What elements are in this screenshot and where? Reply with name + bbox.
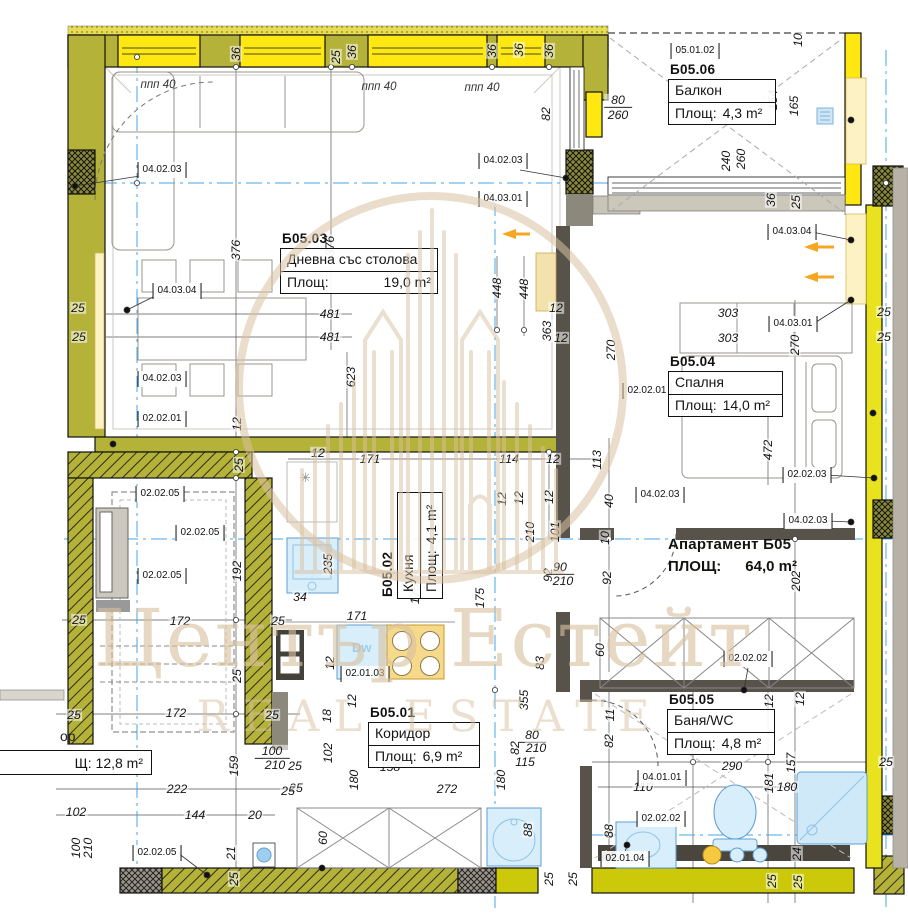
room-label-Б05.02: Б05.02КухняПлощ:4,1 m² [380, 492, 443, 599]
dimension: 82 [540, 106, 552, 122]
room-area: Площ:4,3 m² [669, 102, 775, 125]
room-name: Дневна със столова [281, 249, 437, 271]
dimension: 363 [541, 320, 553, 343]
detail-code: 02.02.05 [176, 525, 225, 541]
dimension: 60 [317, 830, 329, 846]
room-id: Б05.03 [282, 231, 438, 246]
room-label-Б05.06: Б05.06БалконПлощ:4,3 m² [668, 62, 776, 125]
dimension: 12 [553, 332, 569, 344]
detail-code: 02.02.01 [623, 383, 672, 399]
dimension: 172 [165, 707, 188, 719]
room-area: Площ:19,0 m² [281, 271, 437, 294]
dimension: 25 [878, 756, 894, 768]
dimension: 144 [184, 809, 207, 821]
detail-code: 04.02.03 [138, 162, 187, 178]
dimension: 25 [280, 785, 296, 797]
dimension: 180 [776, 781, 799, 793]
apartment-summary: Апартамент Б05 ПЛОЩ: 64,0 m² [668, 536, 797, 575]
dishwasher-symbol: Dw [352, 640, 372, 655]
detail-code: 02.02.01 [138, 411, 187, 427]
room-box: Дневна със столоваПлощ:19,0 m² [280, 248, 438, 294]
detail-code: 02.02.02 [724, 651, 773, 667]
room-name: Коридор [369, 723, 479, 745]
dimension: 25 [543, 871, 555, 887]
detail-code: 04.03.01 [769, 316, 818, 332]
detail-code: 04.01.01 [638, 770, 687, 786]
dimension: 113 [591, 449, 603, 471]
dimension: 12 [513, 490, 525, 506]
dimension: 355 [518, 689, 530, 712]
apartment-area-value: 64,0 m² [745, 558, 797, 575]
room-label-Б05.04: Б05.04СпалняПлощ:14,0 m² [668, 354, 783, 417]
dimension: 101 [549, 521, 561, 544]
dimension: 270 [605, 339, 617, 362]
detail-code: 04.02.03 [636, 487, 685, 503]
dimension: 25 [233, 457, 245, 473]
room-area: Площ:4,1 m² [420, 493, 443, 598]
dimension: 448 [491, 277, 503, 300]
detail-code: 04.03.04 [153, 283, 202, 299]
room-area: Площ:14,0 m² [669, 394, 782, 417]
room-label-Б05.01: Б05.01КоридорПлощ:6,9 m² [368, 705, 480, 768]
room-id: Б05.05 [669, 692, 775, 707]
dimension: 448 [518, 278, 530, 301]
apartment-name: Апартамент Б05 [668, 536, 797, 553]
dimension: 36 [765, 192, 777, 208]
dimension: 210 [552, 575, 575, 587]
dimension: 12 [543, 489, 555, 505]
dimension: 210 [82, 837, 94, 860]
adjacent-room-label-fragment: ор [60, 728, 76, 744]
dimension: 260 [607, 109, 630, 121]
detail-code: 02.01.04 [601, 851, 650, 867]
dimension: 24 [791, 846, 803, 862]
room-box: КухняПлощ:4,1 m² [397, 492, 443, 599]
dimension: 272 [436, 783, 459, 795]
detail-code: 02.02.05 [138, 568, 187, 584]
dimension: 12 [548, 302, 564, 314]
dimension: 210 [264, 759, 287, 771]
dimension: 172 [169, 615, 192, 627]
dimension: 192 [231, 560, 243, 583]
dimension: 472 [762, 439, 774, 462]
dimension: 12 [346, 693, 358, 709]
room-name: Баня/WC [668, 710, 774, 732]
dimension: 40 [603, 493, 615, 509]
dimension: 25 [792, 874, 804, 890]
room-name: Спалня [669, 372, 782, 394]
dimension: 88 [522, 822, 534, 838]
dimension: 12 [324, 655, 336, 671]
dimension: 10 [792, 32, 804, 48]
dimension: 25 [270, 615, 286, 627]
detail-code: 04.02.03 [784, 513, 833, 529]
dimension: 25 [287, 760, 303, 772]
room-id: Б05.01 [370, 705, 480, 720]
dimension: 83 [534, 655, 546, 671]
dimension: 80 [604, 94, 632, 108]
dimension: 25 [264, 709, 280, 721]
room-id: Б05.06 [670, 62, 776, 77]
dimension: 20 [247, 809, 263, 821]
dimension: 34 [292, 591, 308, 603]
dimension: 181 [763, 772, 775, 795]
dimension: 25 [228, 871, 240, 887]
dimension: 25 [790, 194, 802, 210]
room-name: Кухня [398, 493, 420, 598]
dimension: 481 [319, 331, 342, 343]
dimension: 25 [231, 668, 243, 684]
dimension: 290 [721, 760, 744, 772]
dimension: 25 [71, 614, 87, 626]
dimension: 36 [543, 43, 555, 59]
dimension: 36 [346, 44, 358, 60]
room-id: Б05.02 [380, 492, 395, 597]
fridge-symbol: ✳ [300, 470, 311, 486]
room-id: Б05.04 [670, 354, 783, 369]
dimension: 21 [225, 845, 237, 861]
dimension: 171 [346, 610, 369, 622]
dimension: 235 [322, 553, 334, 576]
detail-code: 02.02.05 [136, 486, 185, 502]
dimension: 210 [524, 521, 536, 544]
room-area: Площ:4,8 m² [668, 732, 774, 755]
dimension: 25 [876, 331, 892, 343]
dimension: 25 [330, 49, 342, 65]
dimension: 180 [495, 769, 507, 792]
adjacent-room-area-box: Щ: 12,8 m² [0, 750, 152, 775]
dimension: 376 [230, 239, 242, 262]
room-label-Б05.05: Б05.05Баня/WCПлощ:4,8 m² [667, 692, 775, 755]
detail-code: 04.02.03 [138, 371, 187, 387]
dimension: 102 [322, 742, 334, 765]
dimension: 25 [766, 873, 778, 889]
dimension: 115 [514, 756, 536, 768]
detail-code: 04.03.01 [479, 191, 528, 207]
detail-code: 04.02.03 [479, 153, 528, 169]
dimension: 12 [794, 691, 806, 707]
dimension: 102 [65, 806, 88, 818]
dimension: 270 [789, 334, 801, 357]
dimension: 36 [486, 43, 498, 59]
dimension: 36 [230, 46, 242, 62]
dimension: 25 [70, 302, 86, 314]
room-box: Баня/WCПлощ:4,8 m² [667, 709, 775, 755]
dimension: 303 [717, 332, 740, 344]
dimension: 180 [348, 769, 360, 792]
dimension: 10 [599, 530, 611, 546]
apartment-area-label: ПЛОЩ: [668, 558, 721, 575]
room-label-Б05.03: Б05.03Дневна със столоваПлощ:19,0 m² [280, 231, 438, 294]
dimension: 12 [231, 416, 243, 432]
dimension: 11 [604, 708, 616, 723]
dimension: 175 [474, 587, 486, 610]
floor-plan: 3625363636368210154165802602402603625252… [0, 0, 908, 921]
dimension: 623 [345, 366, 357, 389]
dimension: 303 [717, 307, 740, 319]
dimension: 18 [321, 708, 333, 724]
dimension: 25 [876, 306, 892, 318]
window-type-label: ппп 40 [362, 81, 397, 93]
detail-code: 02.02.02 [637, 811, 686, 827]
dimension: 92 [601, 570, 613, 586]
dimension: 481 [319, 308, 342, 320]
dimension: 222 [166, 783, 189, 795]
window-type-label: ппп 40 [465, 82, 500, 94]
dimension: 60 [594, 642, 606, 658]
dimension: 210 [525, 742, 548, 754]
dimension: 25 [567, 871, 579, 887]
dimension: 12 [545, 453, 561, 465]
annotation-layer: 3625363636368210154165802602402603625252… [0, 0, 908, 921]
dimension: 171 [359, 453, 382, 465]
dimension: 240 [720, 150, 732, 173]
dimension: 82 [603, 733, 615, 749]
room-box: СпалняПлощ:14,0 m² [668, 371, 783, 417]
dimension: 12 [496, 491, 508, 507]
dimension: 114 [498, 453, 520, 465]
dimension: 260 [735, 148, 747, 171]
window-type-label: ппп 40 [141, 79, 176, 91]
dimension: 88 [603, 823, 615, 839]
dimension: 25 [66, 709, 82, 721]
dimension: 159 [228, 755, 240, 778]
detail-code: 05.01.02 [671, 43, 720, 59]
dimension: 12 [310, 447, 326, 459]
detail-code: 02.01.03 [341, 666, 390, 682]
dimension: 36 [513, 42, 525, 58]
room-box: КоридорПлощ:6,9 m² [368, 722, 480, 768]
detail-code: 04.03.04 [768, 224, 817, 240]
room-name: Балкон [669, 80, 775, 102]
dimension: 165 [788, 95, 800, 118]
detail-code: 02.02.03 [783, 467, 832, 483]
dimension: 157 [785, 752, 797, 775]
detail-code: 02.02.05 [133, 845, 182, 861]
room-box: БалконПлощ:4,3 m² [668, 79, 776, 125]
room-area: Площ:6,9 m² [369, 745, 479, 768]
dimension: 25 [71, 331, 87, 343]
